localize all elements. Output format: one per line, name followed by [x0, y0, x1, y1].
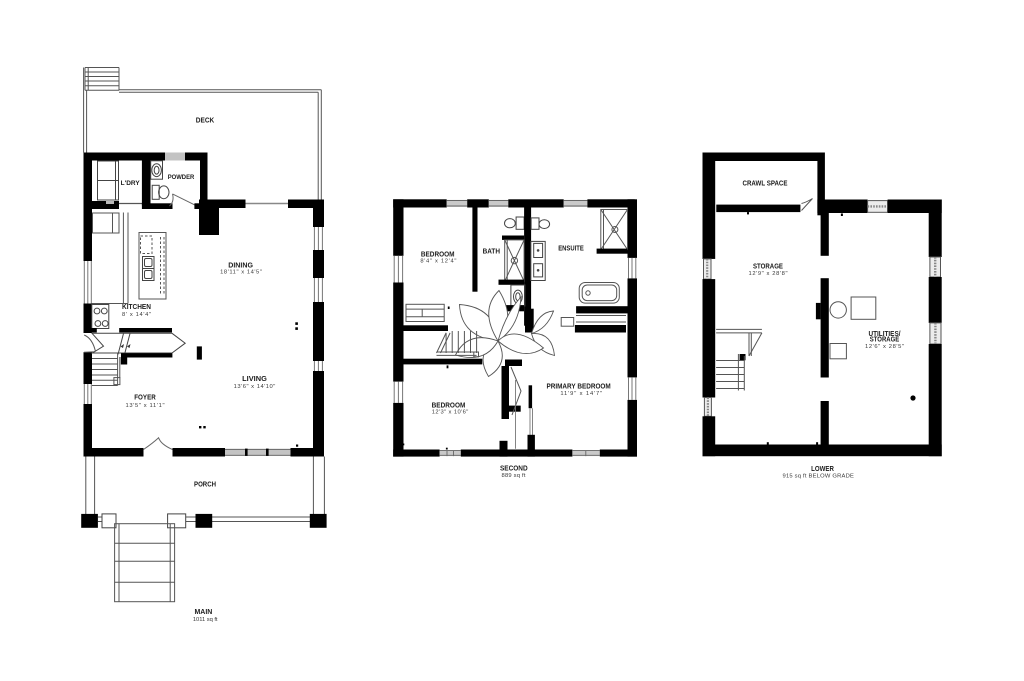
- svg-text:18'11" x 14'5": 18'11" x 14'5": [220, 270, 262, 276]
- svg-text:CRAWL SPACE: CRAWL SPACE: [743, 180, 788, 187]
- svg-text:BEDROOM: BEDROOM: [421, 252, 455, 259]
- svg-text:11'9" x 14'7": 11'9" x 14'7": [560, 391, 602, 397]
- svg-text:POWDER: POWDER: [168, 174, 195, 181]
- svg-text:SECOND: SECOND: [500, 466, 528, 473]
- svg-text:STORAGE: STORAGE: [753, 264, 783, 271]
- svg-text:L'DRY: L'DRY: [121, 180, 141, 187]
- svg-text:DINING: DINING: [228, 262, 253, 269]
- svg-text:12'9" x 28'8": 12'9" x 28'8": [749, 271, 788, 277]
- svg-text:PRIMARY BEDROOM: PRIMARY BEDROOM: [546, 384, 610, 391]
- svg-text:LIVING: LIVING: [242, 376, 267, 383]
- svg-text:MAIN: MAIN: [195, 609, 213, 616]
- svg-text:12'6" x 28'5": 12'6" x 28'5": [865, 344, 904, 350]
- svg-text:FOYER: FOYER: [134, 395, 156, 402]
- svg-text:LOWER: LOWER: [811, 466, 834, 473]
- svg-text:915 sq ft BELOW GRADE: 915 sq ft BELOW GRADE: [783, 473, 855, 479]
- svg-text:BEDROOM: BEDROOM: [432, 402, 466, 409]
- svg-text:STORAGE: STORAGE: [870, 337, 900, 344]
- svg-text:12'3" x 10'6": 12'3" x 10'6": [432, 410, 469, 416]
- svg-text:BATH: BATH: [483, 249, 500, 256]
- svg-text:13'5" x 11'1": 13'5" x 11'1": [126, 403, 165, 409]
- svg-text:KITCHEN: KITCHEN: [122, 304, 151, 311]
- svg-text:13'6" x 14'10": 13'6" x 14'10": [234, 384, 276, 390]
- svg-text:PORCH: PORCH: [194, 482, 216, 489]
- svg-text:8'4" x 12'4": 8'4" x 12'4": [420, 259, 456, 265]
- svg-text:8' x 14'4": 8' x 14'4": [122, 312, 151, 318]
- svg-text:ENSUITE: ENSUITE: [558, 246, 584, 253]
- svg-text:DECK: DECK: [196, 118, 215, 125]
- svg-text:1011 sq ft: 1011 sq ft: [193, 617, 218, 623]
- svg-text:889 sq ft: 889 sq ft: [502, 473, 526, 479]
